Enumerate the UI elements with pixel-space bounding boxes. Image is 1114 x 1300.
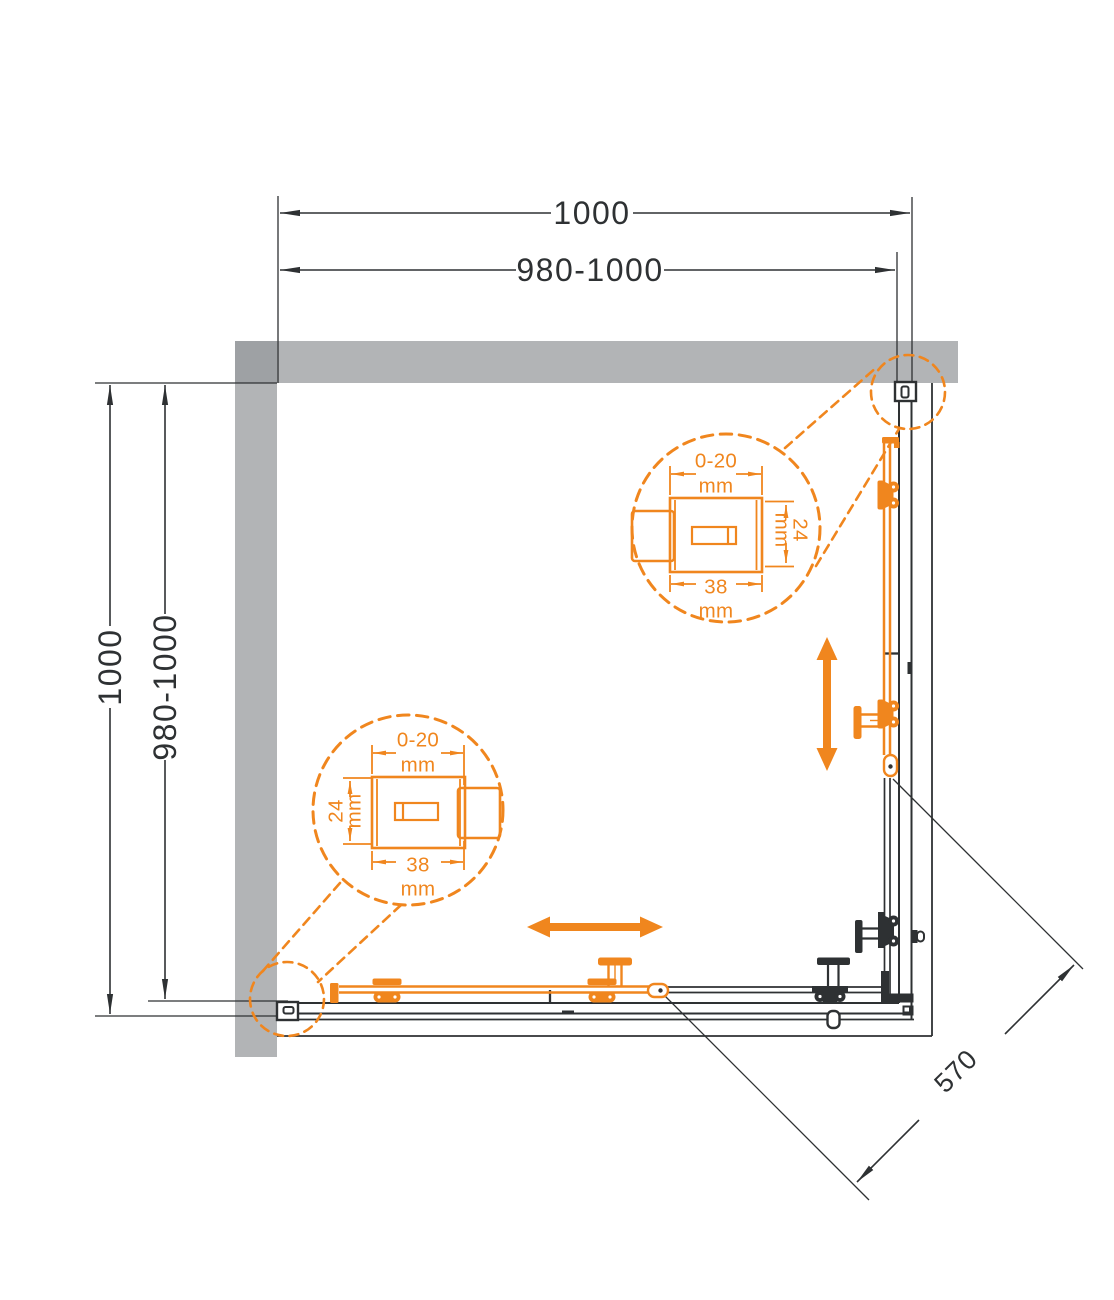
dimension-label-top-adjust: 980-1000: [516, 252, 663, 288]
detail-dim-width: 38 mm: [372, 841, 464, 901]
dimension-left-outer: 1000: [92, 385, 128, 1014]
dimension-diagonal-entry: 570: [664, 779, 1083, 1200]
slide-direction-arrow-vertical-icon: [817, 637, 838, 771]
corner-connector: [881, 971, 914, 1016]
wall-corner-overlap: [235, 341, 277, 383]
profile-slot: [395, 803, 438, 820]
detail-dim-depth: 24 mm: [765, 502, 812, 567]
right-rail: [899, 401, 912, 1020]
outer-knob-icon: [917, 932, 924, 942]
detail-label: 0-20: [397, 729, 439, 752]
diagram-canvas: 1000 980-1000 1000 980-1000 570: [0, 0, 1114, 1300]
dimension-label-top-outer: 1000: [553, 195, 630, 231]
detail-unit: mm: [699, 600, 734, 623]
detail-label: 38: [704, 576, 727, 599]
callout-links: [250, 355, 945, 1036]
door-roller-corner-bottom: [812, 958, 850, 1029]
door-panel-closed-bottom: [668, 987, 886, 993]
dimension-top-adjust: 980-1000: [280, 252, 895, 288]
profile-body: [372, 777, 465, 848]
dimension-label-left-outer: 1000: [92, 628, 128, 705]
dimension-label-left-adjust: 980-1000: [147, 613, 183, 760]
sliding-door-bottom: [330, 958, 668, 1004]
detail-label: 0-20: [695, 450, 737, 473]
profile-wall-tab: [632, 511, 674, 561]
extension-lines: [95, 196, 912, 1016]
sliding-door-right: [854, 437, 900, 776]
detail-circle-top-right: 0-20 mm 38 mm 24 mm: [632, 434, 820, 623]
slide-direction-arrow-horizontal-icon: [527, 917, 663, 938]
bottom-rail: [298, 1003, 914, 1020]
detail-dim-depth: 24 mm: [325, 778, 374, 844]
wall-profile-top-right: [895, 382, 916, 401]
dimension-label-diagonal: 570: [928, 1043, 983, 1098]
detail-unit: mm: [699, 475, 734, 498]
bottom-guide-icon: [828, 1011, 840, 1028]
shower-enclosure-installation-diagram: 1000 980-1000 1000 980-1000 570: [0, 0, 1114, 1300]
detail-circle-bottom-left: 0-20 mm 38 mm 24 mm: [313, 715, 503, 905]
profile-body: [670, 498, 762, 572]
walls: [235, 341, 958, 1057]
door-pivot-cap: [648, 984, 668, 997]
handle-icon: [817, 958, 850, 966]
detail-dim-adjust-range: 0-20 mm: [670, 450, 762, 498]
door-end-cap: [330, 983, 339, 1003]
wall-left: [235, 341, 277, 1057]
detail-unit: mm: [343, 794, 366, 829]
wall-profile-bottom-left: [277, 1002, 298, 1020]
handle-icon: [855, 920, 863, 953]
detail-dim-width: 38 mm: [670, 575, 762, 623]
dimension-top-outer: 1000: [280, 195, 910, 231]
detail-unit: mm: [401, 754, 436, 777]
dimension-left-adjust: 980-1000: [147, 385, 183, 999]
shower-tray-outline: [277, 383, 932, 1036]
detail-unit: mm: [771, 513, 794, 548]
detail-label: 38: [406, 854, 429, 877]
detail-unit: mm: [401, 878, 436, 901]
wall-top: [235, 341, 958, 383]
door-panel-closed-right: [885, 778, 891, 996]
profile-slot: [692, 527, 736, 544]
